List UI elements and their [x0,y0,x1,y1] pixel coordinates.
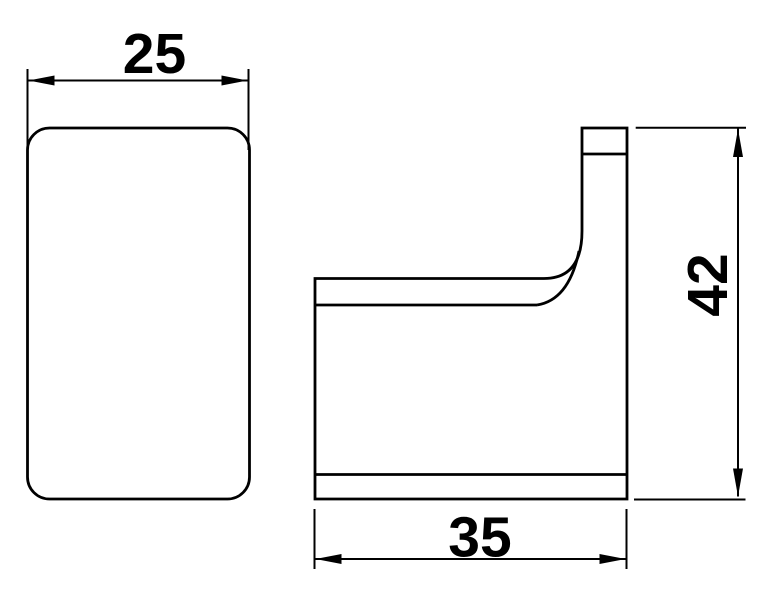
svg-text:42: 42 [676,253,740,316]
svg-text:25: 25 [123,22,186,86]
svg-text:35: 35 [448,506,511,570]
